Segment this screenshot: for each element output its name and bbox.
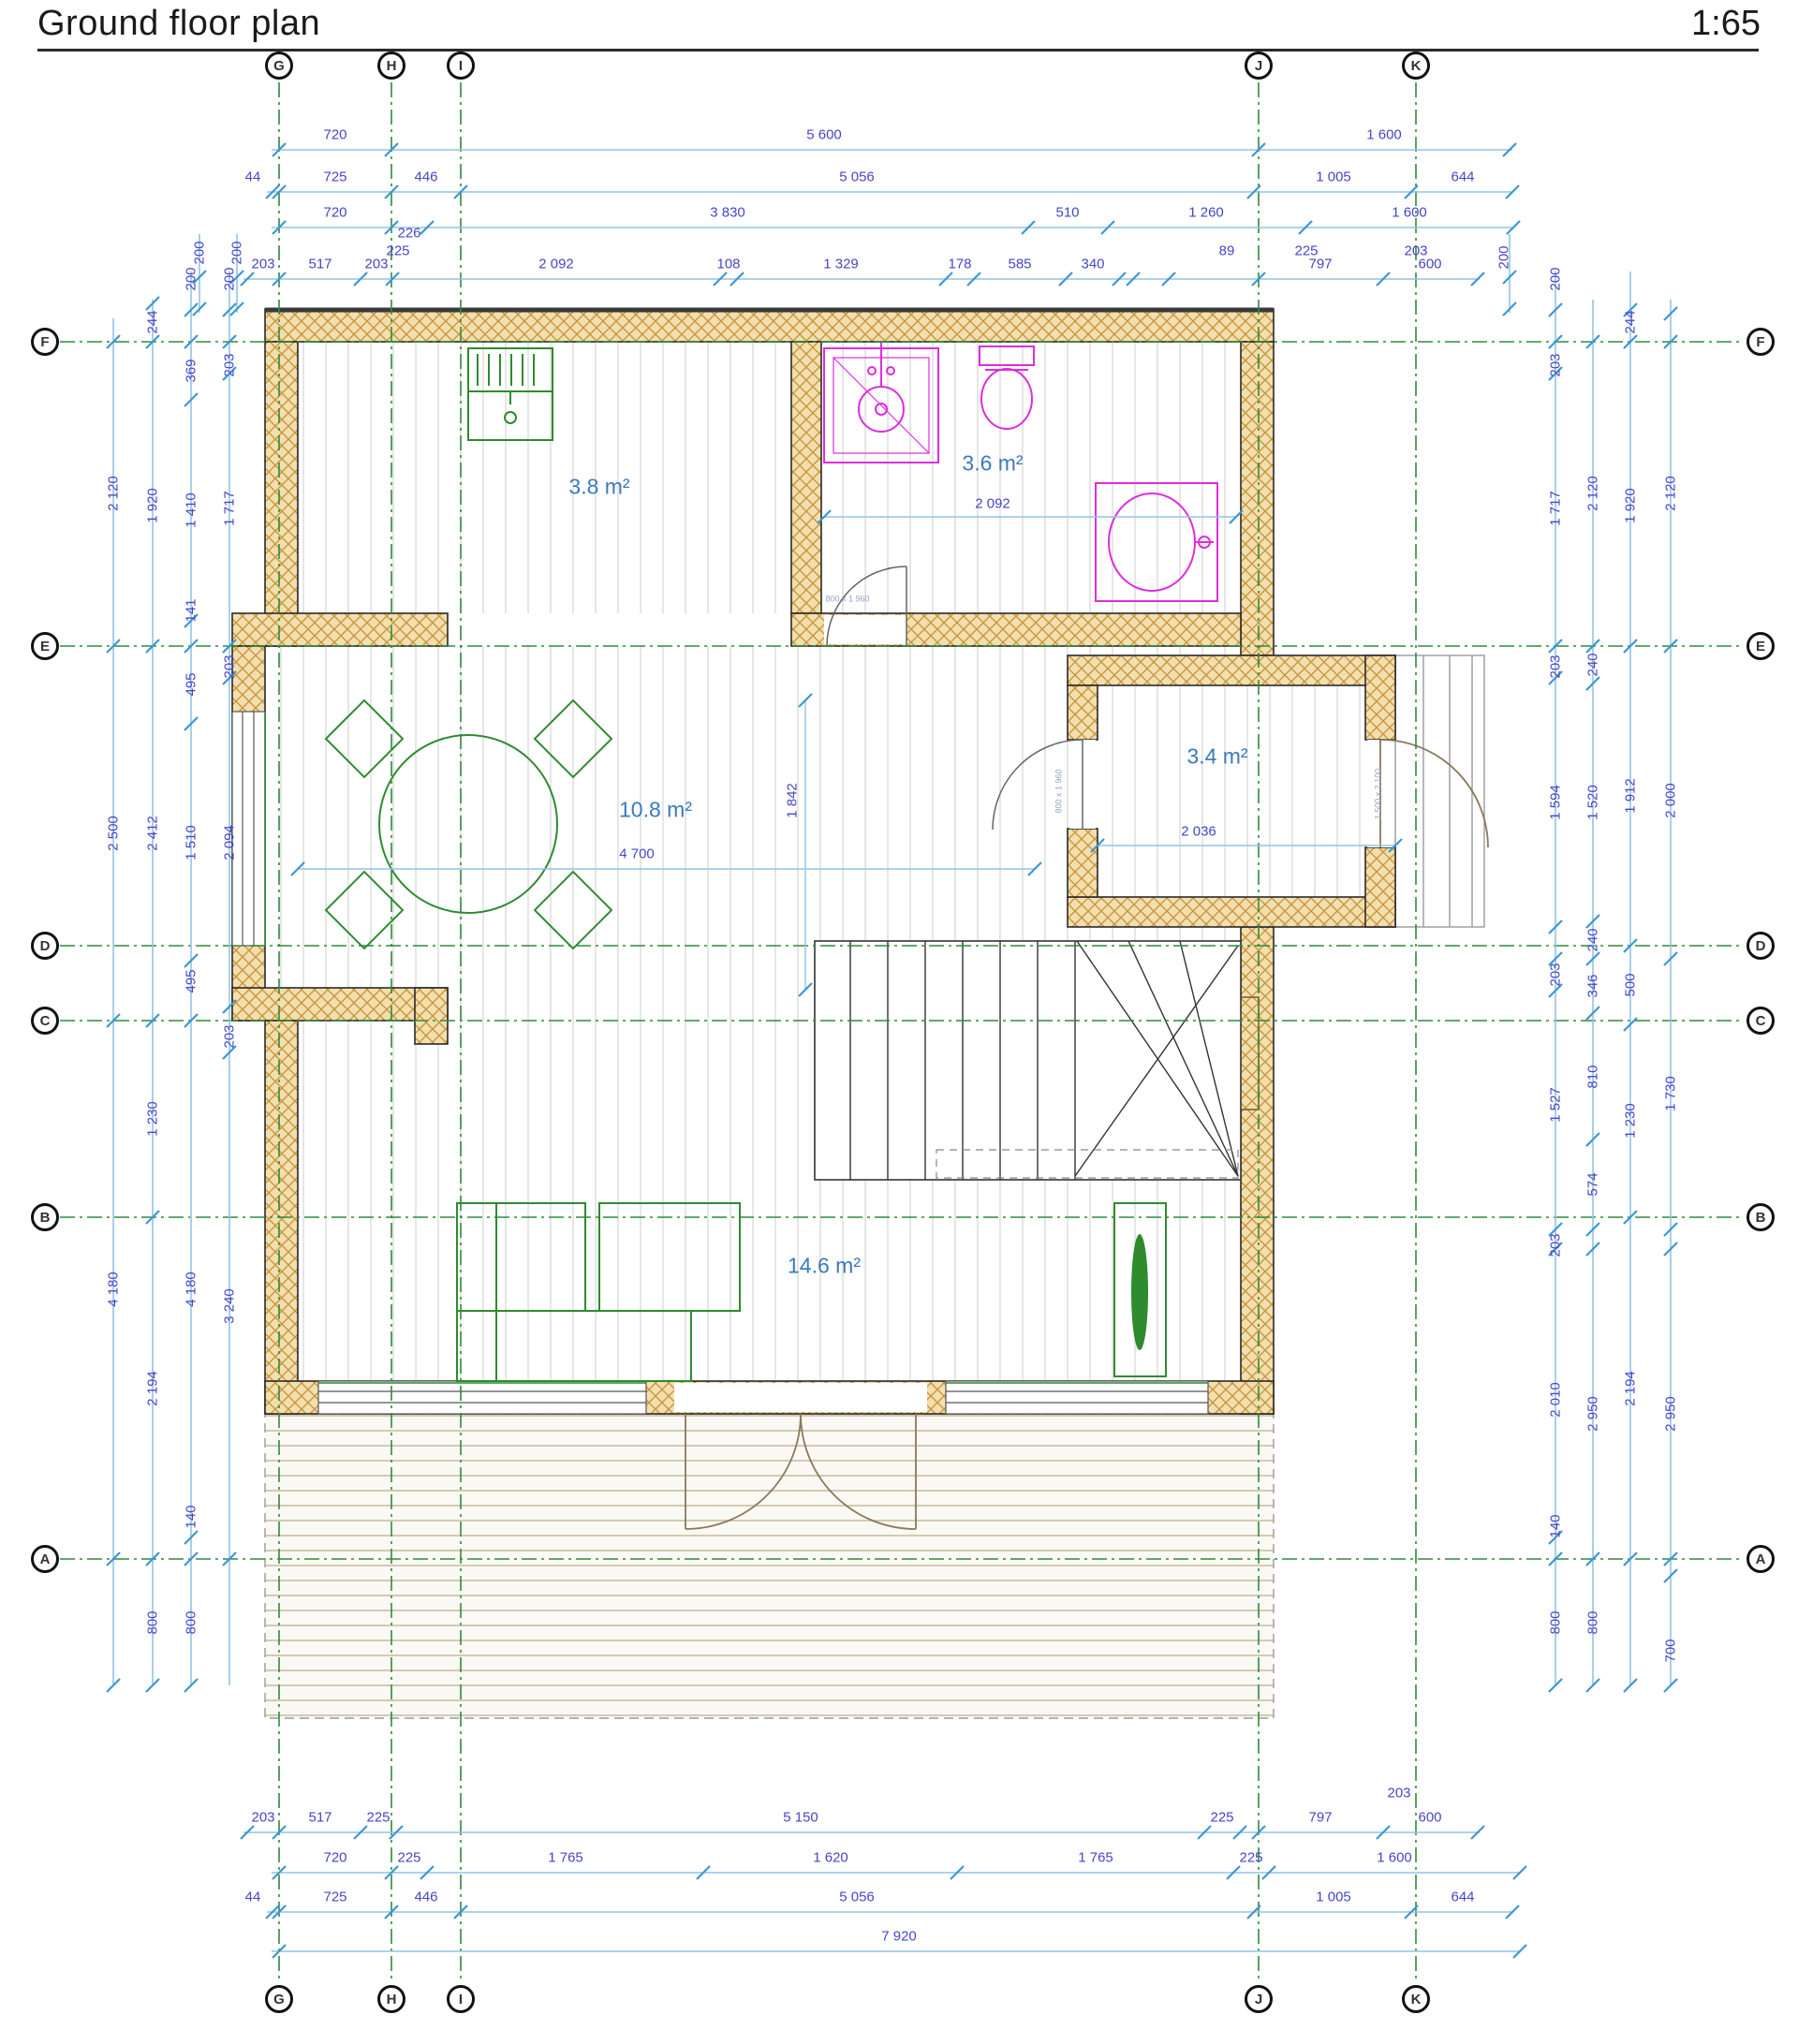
top-dim-label: 340 [1081, 257, 1104, 272]
bottom-dim-label: 446 [414, 1890, 437, 1904]
grid-bubble-J: J [1245, 1985, 1273, 2013]
right-dim-label: 574 [1586, 1172, 1600, 1196]
left-dim-label: 2 094 [223, 825, 237, 860]
top-dim-label: 600 [1418, 257, 1441, 272]
bottom-dim-label: 7 920 [881, 1930, 917, 1944]
grid-bubble-B: B [1746, 1203, 1775, 1231]
top-dim-label: 225 [386, 244, 409, 258]
grid-bubble-E: E [31, 632, 59, 660]
left-dim-label: 203 [223, 1024, 237, 1048]
bottom-dim-label: 1 620 [813, 1851, 848, 1865]
left-dim-label: 369 [184, 359, 199, 382]
top-dim-label: 108 [716, 257, 740, 272]
grid-bubble-B: B [31, 1203, 59, 1231]
bottom-dim-label: 5 056 [839, 1890, 875, 1904]
room-area-label: 3.6 m² [962, 453, 1023, 475]
top-dim-label: 178 [948, 257, 971, 272]
top-dim-label: 44 [245, 170, 261, 184]
top-dim-label: 1 005 [1316, 170, 1351, 184]
right-dim-label: 1 520 [1586, 785, 1600, 820]
grid-bubble-D: D [31, 932, 59, 960]
door-size-label: 800 x 1 960 [825, 596, 869, 604]
top-dim-label: 3 830 [710, 206, 745, 220]
bottom-dim-label: 225 [366, 1811, 390, 1825]
grid-bubble-J: J [1245, 51, 1273, 80]
top-dim-label: 720 [323, 128, 346, 142]
left-dim-label: 203 [223, 654, 237, 678]
top-dim-label: 517 [308, 257, 332, 272]
floor-plan-page: Ground floor plan 1:65 [0, 0, 1798, 2044]
bottom-dim-label: 1 765 [548, 1851, 583, 1865]
right-dim-label: 1 527 [1549, 1087, 1563, 1123]
grid-bubble-I: I [447, 1985, 475, 2013]
right-dim-label: 244 [1624, 310, 1638, 333]
bottom-dim-label: 44 [245, 1890, 261, 1904]
top-dim-label: 446 [414, 170, 437, 184]
bottom-dim-label: 1 005 [1316, 1890, 1351, 1904]
right-dim-label: 810 [1586, 1065, 1600, 1088]
top-dim-label: 5 600 [806, 128, 842, 142]
right-dim-label: 1 594 [1549, 785, 1563, 820]
top-dim-label: 203 [251, 257, 274, 272]
top-dim-label: 644 [1451, 170, 1474, 184]
right-dim-label: 203 [1549, 963, 1563, 986]
right-dim-label: 2 950 [1586, 1396, 1600, 1432]
top-dim-label: 200 [230, 241, 244, 264]
grid-bubble-E: E [1746, 632, 1775, 660]
top-dim-label: 1 260 [1188, 206, 1224, 220]
grid-bubble-C: C [1746, 1007, 1775, 1035]
left-dim-label: 244 [146, 310, 160, 333]
left-dim-label: 495 [184, 969, 199, 993]
right-dim-label: 2 120 [1586, 476, 1600, 511]
left-dim-label: 1 717 [223, 491, 237, 526]
top-dim-label: 1 600 [1392, 206, 1427, 220]
right-dim-label: 2 010 [1549, 1382, 1563, 1418]
bottom-dim-label: 203 [251, 1811, 274, 1825]
left-dim-label: 4 180 [184, 1272, 199, 1307]
top-dim-label: 510 [1055, 206, 1079, 220]
grid-bubble-I: I [447, 51, 475, 80]
left-dim-label: 2 500 [107, 816, 121, 851]
grid-bubble-H: H [377, 1985, 405, 2013]
door-size-label: 1 500 x 2 100 [1375, 769, 1383, 820]
grid-bubble-C: C [31, 1007, 59, 1035]
top-dim-label: 585 [1008, 257, 1031, 272]
grid-bubble-A: A [31, 1545, 59, 1573]
top-dim-label: 1 600 [1366, 128, 1402, 142]
top-dim-label: 203 [364, 257, 388, 272]
right-dim-label: 240 [1586, 653, 1600, 676]
left-dim-label: 141 [184, 598, 199, 622]
door-size-label: 800 x 1 960 [1055, 769, 1064, 813]
room-area-label: 10.8 m² [619, 800, 692, 821]
room-area-label: 3.4 m² [1186, 746, 1247, 768]
inner-dim-label: 2 092 [975, 497, 1010, 511]
window-bottom-left [318, 1381, 646, 1414]
bottom-dim-label: 725 [323, 1890, 346, 1904]
left-dim-label: 1 510 [184, 825, 199, 860]
right-dim-label: 203 [1549, 654, 1563, 678]
top-dim-label: 5 056 [839, 170, 875, 184]
grid-bubble-F: F [1746, 328, 1775, 356]
inner-dim-label: 2 036 [1181, 825, 1216, 839]
right-dim-label: 800 [1586, 1610, 1600, 1634]
top-dim-label: 725 [323, 170, 346, 184]
plan-drawing [0, 0, 1798, 2044]
left-dim-label: 800 [184, 1610, 199, 1634]
grid-bubble-D: D [1746, 932, 1775, 960]
bottom-dim-label: 797 [1308, 1811, 1332, 1825]
bottom-dim-label: 517 [308, 1811, 332, 1825]
top-dim-label: 1 329 [823, 257, 859, 272]
left-dim-label: 140 [184, 1505, 199, 1528]
left-dim-label: 800 [146, 1610, 160, 1634]
right-dim-label: 1 717 [1549, 491, 1563, 526]
right-dim-label: 203 [1549, 353, 1563, 376]
grid-bubble-G: G [265, 1985, 293, 2013]
top-dim-label: 797 [1308, 257, 1332, 272]
grid-bubble-G: G [265, 51, 293, 80]
right-dim-label: 800 [1549, 1610, 1563, 1634]
left-dim-label: 200 [184, 267, 199, 290]
top-dim-label: 200 [193, 241, 207, 264]
grid-bubble-H: H [377, 51, 405, 80]
right-dim-label: 1 730 [1664, 1076, 1678, 1111]
grid-bubble-A: A [1746, 1545, 1775, 1573]
right-dim-label: 1 912 [1624, 778, 1638, 814]
grid-bubble-K: K [1402, 1985, 1430, 2013]
inner-dim-label: 1 842 [786, 783, 800, 818]
left-dim-label: 4 180 [107, 1272, 121, 1307]
right-dim-label: 2 120 [1664, 476, 1678, 511]
top-dim-label: 2 092 [538, 257, 574, 272]
entry-porch [1395, 655, 1484, 927]
bottom-dim-label: 1 600 [1377, 1851, 1412, 1865]
left-dim-label: 2 194 [146, 1371, 160, 1406]
bottom-dim-label: 225 [397, 1851, 420, 1865]
right-dim-label: 203 [1549, 1233, 1563, 1257]
inner-dim-label: 4 700 [619, 847, 655, 861]
left-dim-label: 2 412 [146, 816, 160, 851]
left-dim-label: 3 240 [223, 1288, 237, 1324]
right-dim-label: 1 230 [1624, 1103, 1638, 1139]
right-dim-label: 346 [1586, 974, 1600, 997]
top-dim-label: 720 [323, 206, 346, 220]
bottom-dim-label: 225 [1239, 1851, 1262, 1865]
left-dim-label: 1 920 [146, 488, 160, 523]
grid-bubble-F: F [31, 328, 59, 356]
room-area-label: 3.8 m² [568, 477, 629, 498]
left-dim-label: 200 [223, 267, 237, 290]
grid-bubble-K: K [1402, 51, 1430, 80]
left-dim-label: 203 [223, 353, 237, 376]
bottom-dim-label: 720 [323, 1851, 346, 1865]
window-bottom-right [946, 1381, 1208, 1414]
right-dim-label: 240 [1586, 928, 1600, 951]
right-dim-label: 2 194 [1624, 1371, 1638, 1406]
deck [265, 1414, 1274, 1718]
bottom-dim-label: 644 [1451, 1890, 1474, 1904]
left-dim-label: 1 230 [146, 1101, 160, 1137]
bottom-dim-label: 1 765 [1078, 1851, 1113, 1865]
top-dim-label: 200 [1497, 245, 1511, 269]
top-dim-label: 226 [397, 227, 420, 241]
entry-door [1367, 740, 1488, 847]
top-dim-label: 89 [1219, 244, 1235, 258]
right-dim-label: 1 920 [1624, 488, 1638, 523]
right-dim-label: 2 000 [1664, 783, 1678, 818]
right-dim-label: 500 [1624, 973, 1638, 996]
left-dim-label: 495 [184, 672, 199, 696]
right-dim-label: 140 [1549, 1514, 1563, 1537]
bottom-dim-label: 5 150 [783, 1811, 818, 1825]
stairs [815, 941, 1241, 1180]
room-area-label: 14.6 m² [788, 1256, 861, 1277]
bottom-dim-label: 225 [1210, 1811, 1233, 1825]
right-dim-label: 2 950 [1664, 1396, 1678, 1432]
right-dim-label: 200 [1549, 267, 1563, 290]
left-dim-label: 2 120 [107, 476, 121, 511]
left-dim-label: 1 410 [184, 493, 199, 528]
bottom-dim-label: 600 [1418, 1811, 1441, 1825]
bottom-dim-label: 203 [1387, 1787, 1410, 1801]
right-dim-label: 700 [1664, 1639, 1678, 1662]
